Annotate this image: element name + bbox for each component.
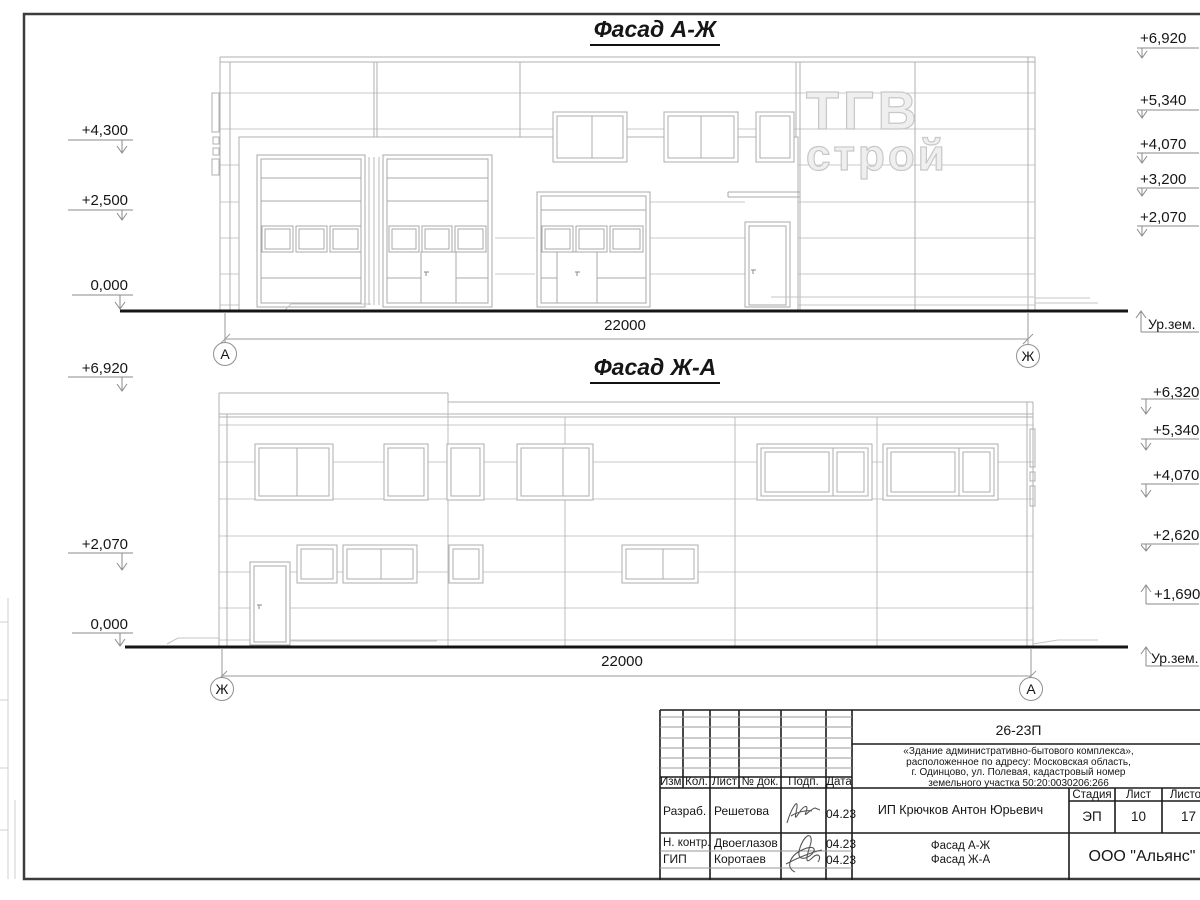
signature-reshetova (787, 804, 820, 823)
facade2-aprons (167, 638, 1098, 644)
drawing-title-line1: Фасад А-Ж (852, 840, 1069, 852)
sheet-label: Лист (1115, 789, 1162, 801)
facade2-outline (219, 393, 1033, 648)
facade2-title-text: Фасад Ж-А (590, 354, 721, 384)
elevation-label: 0,000 (48, 277, 128, 294)
sheets-value: 17 (1162, 809, 1200, 824)
facade2-dimension: 22000 (552, 653, 692, 670)
elevation-label: +4,070 (1140, 136, 1186, 153)
sheet-value: 10 (1115, 809, 1162, 824)
facade2-windows-lower (297, 545, 698, 583)
drawing-sheet: ТГВ строй Фасад А-Ж Фасад Ж-А +4,300 +2,… (0, 0, 1200, 900)
axis-bubble-zh: Ж (1016, 344, 1040, 368)
elevation-label: +4,300 (48, 122, 128, 139)
col-kol: Кол. (683, 776, 710, 788)
watermark-line1: ТГВ (806, 84, 921, 138)
elevation-label: +1,690 (1154, 586, 1200, 603)
elevation-label: +2,070 (1140, 209, 1186, 226)
description-line: «Здание административно-бытового комплек… (852, 747, 1185, 758)
row-name: Решетова (714, 804, 769, 818)
axis-bubble-zh: Ж (210, 677, 234, 701)
company-name: ООО "Альянс" (1069, 848, 1200, 866)
axis-bubble-a: А (1019, 677, 1043, 701)
elevation-label: +4,070 (1153, 467, 1199, 484)
facade1-title: Фасад А-Ж (520, 16, 790, 46)
client-name: ИП Крючков Антон Юрьевич (852, 803, 1069, 817)
col-izm: Изм. (660, 776, 683, 788)
facade1-garage-door-a (257, 155, 365, 307)
facade1-title-text: Фасад А-Ж (590, 16, 721, 46)
elevation-label: +6,920 (1140, 30, 1186, 47)
signature-korotaev (786, 836, 822, 872)
col-podp: Подп. (781, 776, 826, 788)
facade2-windows-upper (255, 444, 998, 500)
stage-value: ЭП (1069, 809, 1115, 824)
project-description: «Здание административно-бытового комплек… (852, 747, 1185, 789)
facade1-garage-door-b (383, 155, 492, 307)
elevation-label: +2,070 (48, 536, 128, 553)
facade2-entry-door (250, 562, 290, 645)
row-role: ГИП (663, 852, 687, 866)
row-date: 04.23 (826, 807, 852, 821)
elevation-label: +6,320 (1153, 384, 1199, 401)
drawing-title-line2: Фасад Ж-А (852, 854, 1069, 866)
ground-level-label: Ур.зем. (1151, 650, 1199, 666)
facade2-joints (448, 402, 877, 648)
col-list: Лист (710, 776, 739, 788)
row-role: Н. контр. (663, 837, 710, 849)
row-name: Коротаев (714, 852, 766, 866)
elevation-label: +5,340 (1153, 422, 1199, 439)
elevation-label: +2,620 (1153, 527, 1199, 544)
elevation-label: 0,000 (48, 616, 128, 633)
margin-column (0, 598, 15, 879)
watermark-line2: строй (806, 134, 948, 178)
row-role: Разраб. (663, 804, 706, 818)
sheets-label: Листов (1162, 789, 1200, 801)
row-date: 04.23 (826, 853, 852, 867)
col-data: Дата (826, 776, 852, 788)
description-line: земельного участка 50:20:0030206:266 (852, 779, 1185, 790)
elevation-label: +5,340 (1140, 92, 1186, 109)
facade1-windows (553, 112, 794, 162)
facade2-title: Фасад Ж-А (520, 354, 790, 384)
row-name: Двоеглазов (714, 836, 778, 850)
facade1-garage-door-c (537, 192, 650, 307)
elevation-label: +3,200 (1140, 171, 1186, 188)
row-date: 04.23 (826, 837, 852, 851)
facade1-dimension: 22000 (555, 317, 695, 334)
stage-label: Стадия (1069, 789, 1115, 801)
ground-level-label: Ур.зем. (1148, 316, 1196, 332)
elevation-label: +6,920 (48, 360, 128, 377)
col-doc: № док. (739, 776, 781, 788)
axis-bubble-a: А (213, 342, 237, 366)
doc-number: 26-23П (852, 722, 1185, 738)
elevation-label: +2,500 (48, 192, 128, 209)
